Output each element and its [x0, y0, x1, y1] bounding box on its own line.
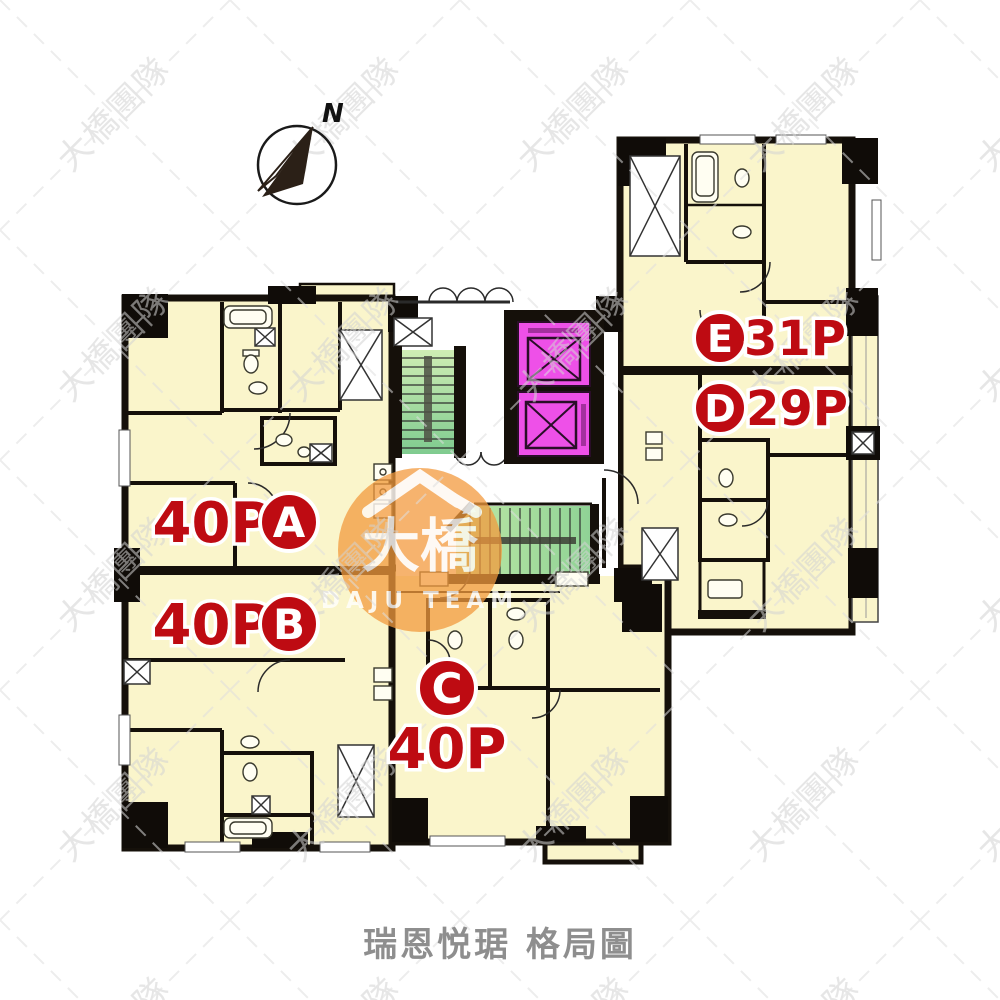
unit-e-area: 31P [744, 311, 846, 367]
unit-label-B: 40P B [153, 593, 318, 658]
unit-c-area: 40P [388, 717, 507, 782]
unit-d-letter: D [704, 387, 736, 431]
unit-b-letter: B [273, 600, 305, 649]
compass-north-label: N [322, 99, 344, 129]
unit-label-A: 40P A [153, 491, 318, 556]
unit-c-letter: C [432, 664, 463, 713]
unit-e-letter: E [707, 317, 733, 361]
floorplan-image: 大橋團隊 [0, 0, 1000, 1000]
caption-title: 瑞恩悦琚 格局圖 [363, 925, 637, 965]
unit-b-area: 40P [153, 593, 272, 658]
unit-d-area: 29P [746, 381, 848, 437]
watermark-overlay [0, 0, 1000, 1000]
unit-a-area: 40P [153, 491, 272, 556]
unit-a-letter: A [273, 498, 306, 547]
unit-label-D: D 29P [694, 381, 848, 437]
unit-label-E: E 31P [694, 311, 846, 367]
floorplan-svg: 大橋團隊 [0, 0, 1000, 1000]
